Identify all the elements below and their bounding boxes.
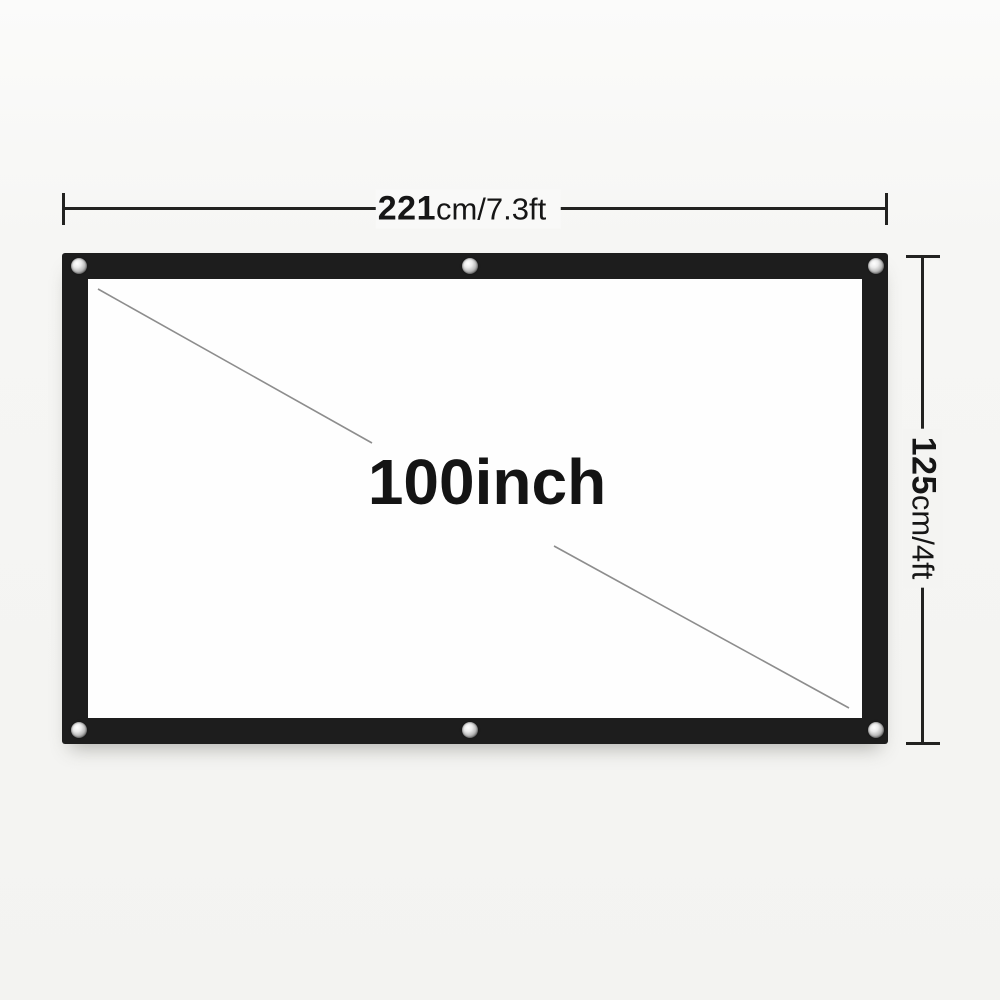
- width-value: 221: [378, 190, 436, 228]
- grommet-icon: [868, 258, 884, 274]
- height-dimension-label: 125cm/4ft: [904, 429, 943, 588]
- grommet-icon: [462, 722, 478, 738]
- product-dimension-diagram: 221cm/7.3ft 100inch 125cm/4ft: [0, 0, 1000, 1000]
- height-value: 125: [905, 437, 943, 495]
- screen-size-label: 100inch: [368, 445, 606, 519]
- grommet-icon: [71, 722, 87, 738]
- height-dimension-callout: 125cm/4ft: [906, 255, 940, 745]
- width-dimension-left-cap: [62, 193, 65, 225]
- height-dimension-bottom-cap: [906, 742, 940, 745]
- height-unit: cm/4ft: [906, 495, 941, 579]
- width-dimension-callout: 221cm/7.3ft: [62, 193, 888, 225]
- grommet-icon: [868, 722, 884, 738]
- width-unit: cm/7.3ft: [436, 192, 546, 227]
- height-dimension-top-cap: [906, 255, 940, 258]
- grommet-icon: [71, 258, 87, 274]
- grommet-icon: [462, 258, 478, 274]
- width-dimension-right-cap: [885, 193, 888, 225]
- width-dimension-label: 221cm/7.3ft: [376, 190, 561, 229]
